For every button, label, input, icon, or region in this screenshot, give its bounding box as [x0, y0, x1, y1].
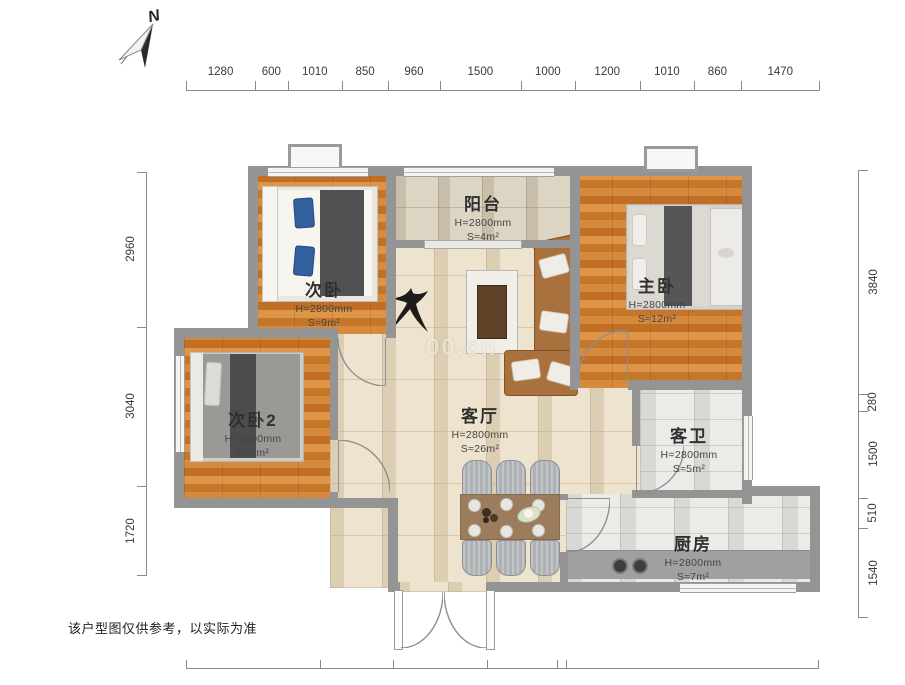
dimension-value: 860: [694, 66, 740, 78]
stove-burner: [612, 558, 628, 574]
pillow-blue: [293, 197, 315, 228]
dimension-value: 1000: [521, 66, 575, 78]
dining-chair: [530, 540, 560, 576]
dimension-baseline-bottom: [186, 668, 819, 669]
flue-box: [644, 146, 698, 172]
dimension-segment: 510: [859, 498, 879, 528]
svg-text:N: N: [146, 7, 162, 26]
dimension-ruler-left: 296030401720: [126, 172, 147, 576]
room-label-bedroom3: 次卧2 H=2800mm S≈8m²: [188, 406, 318, 459]
room-label-bedroom2: 次卧 H=2800mm S≈9m²: [256, 276, 392, 329]
dimension-value: 1010: [288, 66, 343, 78]
wall: [742, 486, 820, 496]
plate: [500, 525, 513, 538]
room-ceiling-height: H=2800mm: [412, 429, 548, 441]
dimension-ruler-right: 384028015005101540: [858, 170, 879, 618]
plate: [468, 499, 481, 512]
wall: [330, 328, 338, 440]
pillow: [204, 362, 222, 407]
bird-decor-icon: [392, 288, 430, 334]
dining-chair: [462, 460, 492, 496]
dimension-segment: 3840: [859, 170, 879, 394]
dimension-value: 850: [342, 66, 388, 78]
dining-chair: [496, 460, 526, 496]
dimension-segment: 1540: [859, 528, 879, 618]
ruler-tick: [320, 660, 321, 669]
room-ceiling-height: H=2800mm: [408, 217, 558, 229]
dimension-segment: 1200: [575, 62, 640, 90]
dimension-value: 1280: [186, 66, 255, 78]
dimension-segment: 1010: [288, 62, 343, 90]
window: [175, 356, 185, 452]
ruler-tick: [186, 660, 187, 669]
floor-plan-page: N 12806001010850960150010001200101086014…: [0, 0, 905, 685]
door-master-bedroom: [578, 330, 628, 380]
dimension-value: 280: [867, 393, 879, 412]
dimension-value: 1470: [741, 66, 820, 78]
room-name: 阳台: [408, 190, 558, 215]
wall: [628, 380, 752, 390]
entry-door-leaf: [486, 590, 495, 650]
dining-chair: [462, 540, 492, 576]
dining-chair: [496, 540, 526, 576]
bench-decor: [718, 248, 734, 258]
room-label-master-bedroom: 主卧 H=2800mm S≈12m²: [592, 272, 722, 325]
dimension-segment: 860: [694, 62, 740, 90]
room-area: S≈4m²: [408, 231, 558, 243]
dimension-value: 510: [867, 504, 879, 523]
dimension-segment: 1000: [521, 62, 575, 90]
dimension-segment: 1500: [859, 411, 879, 499]
room-area: S≈5m²: [630, 463, 748, 475]
wall: [570, 380, 578, 390]
wall: [388, 498, 398, 592]
ruler-tick: [818, 660, 819, 669]
sofa-pillow: [511, 358, 542, 382]
door-kitchen: [568, 498, 610, 552]
room-area: S≈12m²: [592, 313, 722, 325]
entry-door-arc: [444, 592, 486, 648]
dimension-value: 1720: [125, 518, 137, 544]
room-label-kitchen: 厨房 H=2800mm S≈7m²: [634, 530, 752, 583]
wall: [174, 498, 398, 508]
room-label-living-room: 客厅 H=2800mm S≈26m²: [412, 402, 548, 455]
door-bedroom3: [338, 440, 390, 492]
dining-chair: [530, 460, 560, 496]
dimension-segment: 2960: [126, 172, 146, 327]
room-name: 次卧: [256, 276, 392, 301]
room-area: S≈7m²: [634, 571, 752, 583]
room-ceiling-height: H=2800mm: [188, 433, 318, 445]
wall: [560, 494, 568, 500]
pillow-blue: [293, 245, 316, 277]
dimension-segment: 280: [859, 394, 879, 410]
tea-set: [483, 517, 489, 523]
entry-door-arc: [401, 592, 443, 648]
dimension-segment: 850: [342, 62, 388, 90]
room-ceiling-height: H=2800mm: [592, 299, 722, 311]
dimension-segment: 1470: [741, 62, 820, 90]
watermark: 00.cn: [426, 334, 497, 362]
wall: [560, 552, 568, 586]
dimension-value: 3040: [125, 394, 137, 420]
dimension-value: 1500: [440, 66, 521, 78]
dimension-value: 1540: [868, 560, 880, 586]
room-ceiling-height: H=2800mm: [256, 303, 392, 315]
dimension-value: 600: [255, 66, 287, 78]
room-name: 厨房: [634, 530, 752, 555]
flower-decor: [524, 509, 533, 518]
room-label-bathroom: 客卫 H=2800mm S≈5m²: [630, 422, 748, 475]
dimension-value: 960: [388, 66, 440, 78]
dimension-segment: 960: [388, 62, 440, 90]
pillow: [632, 214, 647, 246]
dimension-value: 2960: [125, 237, 137, 263]
dimension-segment: 1500: [440, 62, 521, 90]
sofa-pillow: [539, 310, 570, 334]
dimension-ruler-top: 1280600101085096015001000120010108601470: [186, 62, 820, 91]
room-name: 主卧: [592, 272, 722, 297]
door-bedroom2: [338, 338, 386, 386]
room-area: S≈9m²: [256, 317, 392, 329]
dimension-value: 1200: [575, 66, 640, 78]
room-ceiling-height: H=2800mm: [634, 557, 752, 569]
room-area: S≈26m²: [412, 443, 548, 455]
dimension-segment: 1010: [640, 62, 695, 90]
room-ceiling-height: H=2800mm: [630, 449, 748, 461]
dimension-segment: 3040: [126, 327, 146, 486]
disclaimer-text: 该户型图仅供参考，以实际为准: [68, 618, 257, 637]
dimension-segment: 1280: [186, 62, 255, 90]
ruler-tick: [557, 660, 558, 669]
north-compass-icon: N: [115, 2, 179, 72]
dimension-segment: 1720: [126, 486, 146, 576]
wall: [810, 486, 820, 592]
room-name: 次卧2: [188, 406, 318, 431]
dimension-value: 1010: [640, 66, 695, 78]
dimension-value: 3840: [868, 269, 880, 295]
wall: [248, 328, 338, 338]
ruler-tick: [487, 660, 488, 669]
room-area: S≈8m²: [188, 447, 318, 459]
window: [404, 167, 554, 177]
tea-set: [490, 514, 498, 522]
dimension-value: 1500: [868, 442, 880, 468]
room-name: 客卫: [630, 422, 748, 447]
ruler-tick: [393, 660, 394, 669]
room-label-balcony: 阳台 H=2800mm S≈4m²: [408, 190, 558, 243]
wall: [330, 492, 338, 508]
window: [680, 583, 796, 593]
tv: [477, 285, 507, 339]
ruler-tick: [566, 660, 567, 669]
dimension-segment: 600: [255, 62, 287, 90]
room-name: 客厅: [412, 402, 548, 427]
plate: [468, 524, 481, 537]
plate: [500, 498, 513, 511]
window: [268, 167, 368, 177]
plate: [532, 524, 545, 537]
wall: [386, 328, 396, 338]
entry-threshold-floor: [396, 582, 488, 592]
